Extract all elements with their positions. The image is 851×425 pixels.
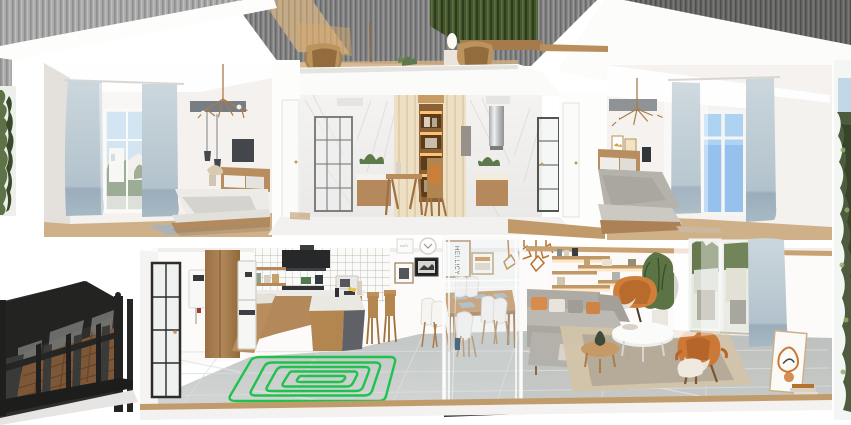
svg-text:sm7v: sm7v	[400, 244, 409, 248]
